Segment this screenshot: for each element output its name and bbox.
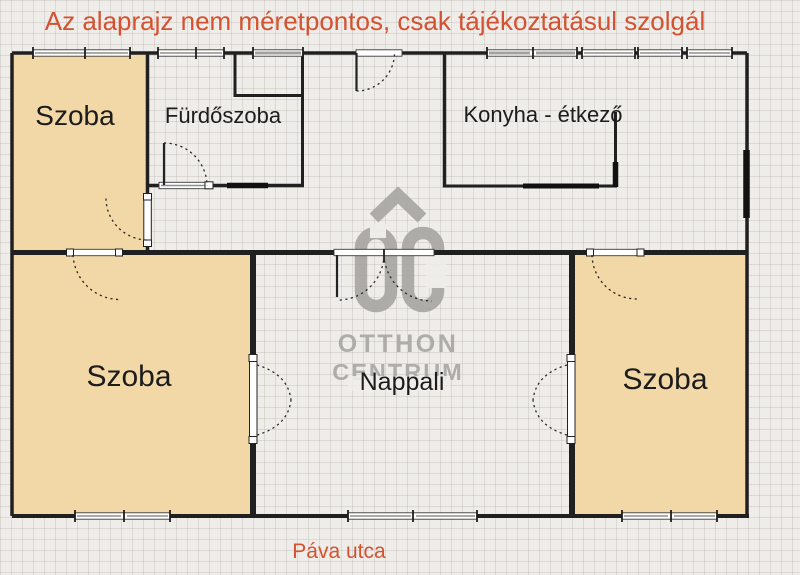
window [687,47,732,59]
label-room-right: Szoba [622,363,707,396]
logo-letter-o [361,233,391,306]
door-living-room-right [533,355,575,444]
label-bathroom: Fürdőszoba [165,103,282,128]
door-bathroom [159,143,213,189]
floor-plan-svg: Az alaprajz nem méretpontos, csak tájéko… [0,0,800,575]
window [582,47,635,59]
window [638,47,682,59]
otthon-centrum-logo: OTTHON CENTRUM [332,195,464,391]
window [487,47,577,59]
double-door-living [334,249,434,301]
window [253,47,303,59]
label-room-top-left: Szoba [35,100,115,131]
logo-c-opening [426,251,446,288]
disclaimer-text: Az alaprajz nem méretpontos, csak tájéko… [45,6,705,36]
label-room-bottom-left: Szoba [86,360,171,393]
label-kitchen-dining: Konyha - étkező [464,102,623,127]
door-room-bl-living [249,355,291,444]
room-fills [14,55,746,515]
floorplan-canvas: Az alaprajz nem méretpontos, csak tájéko… [0,0,800,575]
logo-o-top-gap [370,224,386,238]
street-label: Páva utca [292,540,386,563]
room-fill-top-left [14,55,147,251]
label-living-room: Nappali [360,368,445,396]
roof-chevron-icon [374,195,422,218]
watermark-brand-top: OTTHON [338,330,459,358]
window [348,510,477,522]
window [158,47,224,59]
entry-door [356,50,402,91]
